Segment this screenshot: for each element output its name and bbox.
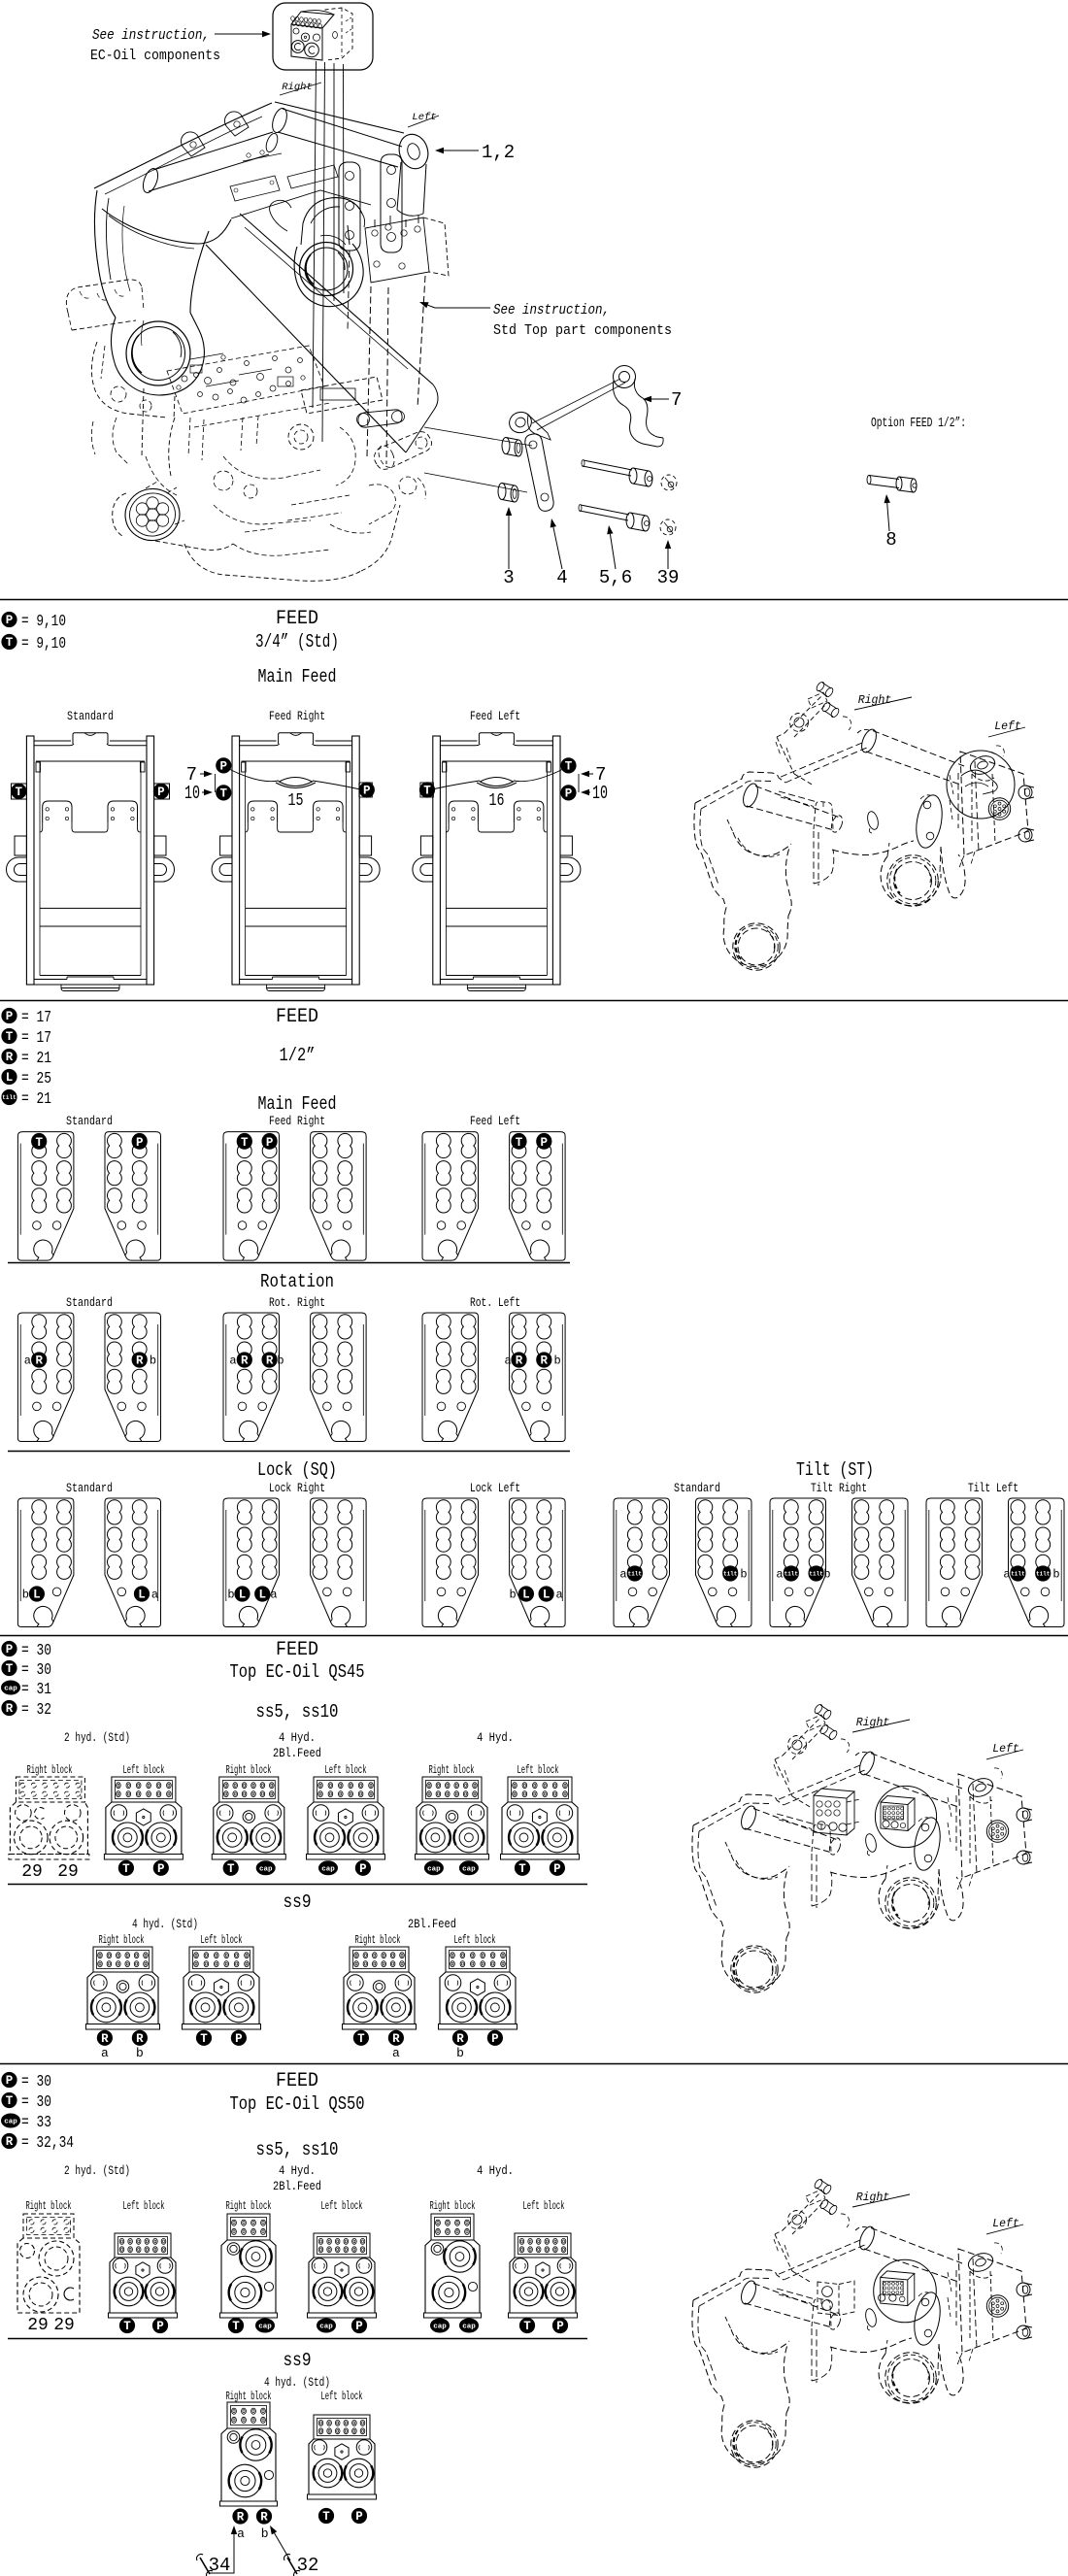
svg-text:P: P <box>157 1862 165 1876</box>
svg-text:cap: cap <box>462 1865 476 1873</box>
svg-text:Left block: Left block <box>201 1934 243 1947</box>
svg-text:T: T <box>518 1862 526 1876</box>
svg-text:a: a <box>229 1355 236 1368</box>
svg-text:ss5, ss10: ss5, ss10 <box>256 1701 339 1723</box>
svg-text:T: T <box>523 2320 531 2333</box>
svg-text:L: L <box>239 1589 247 1602</box>
svg-text:R: R <box>241 1355 249 1368</box>
svg-text:Top EC-Oil QS50: Top EC-Oil QS50 <box>230 2093 365 2115</box>
svg-text:ss5, ss10: ss5, ss10 <box>256 2139 339 2160</box>
svg-text:= 32: = 32 <box>21 1701 51 1720</box>
svg-text:Std Top part components: Std Top part components <box>493 323 672 339</box>
svg-text:Left block: Left block <box>523 2200 565 2213</box>
svg-text:39: 39 <box>657 567 680 588</box>
svg-text:2Bl.Feed: 2Bl.Feed <box>273 1746 321 1760</box>
svg-text:R: R <box>456 2032 464 2046</box>
svg-text:b: b <box>456 2046 464 2060</box>
svg-text:b: b <box>227 1589 234 1602</box>
svg-text:R: R <box>6 1702 14 1716</box>
svg-text:tilt: tilt <box>2 1094 17 1101</box>
svg-text:R: R <box>237 2511 245 2525</box>
svg-text:Feed Left: Feed Left <box>470 710 520 723</box>
svg-text:P: P <box>6 1643 14 1656</box>
svg-text:Feed Right: Feed Right <box>269 710 325 723</box>
svg-text:FEED: FEED <box>276 1006 318 1028</box>
svg-text:T: T <box>516 1136 523 1150</box>
svg-text:Feed Left: Feed Left <box>470 1115 520 1128</box>
svg-text:cap: cap <box>4 2119 17 2126</box>
svg-text:Rot. Right: Rot. Right <box>269 1296 325 1310</box>
svg-text:Right block: Right block <box>355 1934 401 1947</box>
svg-text:b: b <box>136 2046 144 2060</box>
svg-text:Feed Right: Feed Right <box>269 1115 325 1128</box>
svg-text:4 Hyd.: 4 Hyd. <box>477 1730 514 1745</box>
svg-text:a: a <box>555 1589 562 1602</box>
svg-text:10: 10 <box>592 783 608 804</box>
svg-text:T: T <box>16 786 23 799</box>
svg-text:Right block: Right block <box>226 2391 272 2403</box>
svg-text:4 hyd. (Std): 4 hyd. (Std) <box>132 1917 198 1931</box>
svg-text:a: a <box>151 1589 158 1602</box>
svg-text:P: P <box>136 1136 144 1150</box>
svg-text:T: T <box>6 2094 14 2108</box>
svg-text:Left: Left <box>992 2218 1019 2230</box>
svg-text:R: R <box>541 1355 549 1368</box>
svg-text:FEED: FEED <box>276 2070 318 2092</box>
svg-text:3: 3 <box>503 567 514 588</box>
svg-text:cap: cap <box>319 2324 333 2331</box>
svg-text:a: a <box>1003 1568 1010 1582</box>
svg-text:P: P <box>556 2320 564 2333</box>
svg-text:P: P <box>541 1136 549 1150</box>
svg-text:R: R <box>101 2032 109 2046</box>
svg-text:4: 4 <box>556 567 567 588</box>
svg-text:P: P <box>553 1862 561 1876</box>
svg-text:Right block: Right block <box>226 1764 272 1777</box>
svg-text:= 9,10: = 9,10 <box>21 635 66 653</box>
svg-text:Right: Right <box>282 82 313 93</box>
svg-text:Main Feed: Main Feed <box>258 666 337 687</box>
svg-text:Standard: Standard <box>66 1115 113 1128</box>
svg-text:Left block: Left block <box>123 2200 165 2213</box>
svg-text:Left: Left <box>992 1743 1019 1756</box>
svg-text:L: L <box>33 1589 41 1602</box>
svg-text:R: R <box>6 2135 14 2149</box>
svg-text:FEED: FEED <box>276 608 318 630</box>
svg-text:R: R <box>136 2032 144 2046</box>
svg-text:= 30: = 30 <box>21 1661 51 1680</box>
svg-text:Tilt Left: Tilt Left <box>968 1482 1018 1495</box>
svg-text:b: b <box>823 1568 830 1582</box>
svg-text:tilt: tilt <box>1011 1571 1025 1578</box>
svg-text:cap: cap <box>321 1865 335 1873</box>
svg-text:Standard: Standard <box>674 1482 720 1495</box>
svg-text:cap: cap <box>4 1686 17 1693</box>
svg-text:= 9,10: = 9,10 <box>21 613 66 631</box>
svg-text:Right block: Right block <box>26 2200 72 2213</box>
svg-text:Right block: Right block <box>27 1764 73 1777</box>
svg-text:FEED: FEED <box>276 1639 318 1661</box>
svg-text:4 Hyd.: 4 Hyd. <box>279 2163 316 2178</box>
svg-text:b: b <box>277 1355 284 1368</box>
svg-text:a: a <box>101 2046 109 2060</box>
svg-text:P: P <box>6 614 14 627</box>
svg-text:Standard: Standard <box>66 1482 113 1495</box>
svg-text:15: 15 <box>288 791 304 811</box>
svg-text:b: b <box>553 1355 560 1368</box>
svg-text:Standard: Standard <box>67 710 114 723</box>
svg-text:Left block: Left block <box>454 1934 496 1947</box>
svg-text:P: P <box>355 2320 363 2333</box>
svg-text:Right block: Right block <box>226 2200 272 2213</box>
svg-text:R: R <box>136 1355 144 1368</box>
svg-text:Standard: Standard <box>66 1296 113 1310</box>
svg-text:tilt: tilt <box>784 1571 799 1578</box>
svg-text:R: R <box>260 2511 268 2525</box>
svg-text:Right block: Right block <box>430 2200 476 2213</box>
svg-text:R: R <box>392 2032 400 2046</box>
svg-text:T: T <box>122 1862 130 1876</box>
svg-text:T: T <box>6 1030 14 1044</box>
svg-text:cap: cap <box>462 2324 476 2331</box>
svg-text:8: 8 <box>885 529 896 551</box>
svg-text:tilt: tilt <box>809 1571 823 1578</box>
svg-text:= 31: = 31 <box>21 1681 51 1699</box>
svg-text:4 Hyd.: 4 Hyd. <box>477 2163 514 2178</box>
svg-text:Rot. Left: Rot. Left <box>470 1296 520 1310</box>
svg-text:T: T <box>322 2510 330 2524</box>
svg-text:1,2: 1,2 <box>482 142 515 163</box>
svg-text:a: a <box>24 1355 31 1368</box>
svg-text:b: b <box>22 1589 29 1602</box>
svg-text:T: T <box>423 785 431 798</box>
svg-text:ss9: ss9 <box>284 1891 312 1913</box>
svg-text:a: a <box>504 1355 511 1368</box>
svg-text:P: P <box>491 2032 499 2046</box>
svg-text:= 30: = 30 <box>21 2093 51 2112</box>
svg-text:= 30: = 30 <box>21 2073 51 2091</box>
svg-text:29: 29 <box>53 2316 75 2335</box>
svg-text:P: P <box>156 2320 164 2333</box>
svg-text:b: b <box>261 2526 269 2541</box>
svg-text:cap: cap <box>427 1865 441 1873</box>
svg-text:Left block: Left block <box>321 2391 363 2403</box>
svg-text:29: 29 <box>27 2316 49 2335</box>
svg-text:7: 7 <box>671 389 682 411</box>
svg-text:a: a <box>270 1589 277 1602</box>
svg-text:See instruction,: See instruction, <box>92 28 210 44</box>
svg-text:4 hyd. (Std): 4 hyd. (Std) <box>264 2375 330 2390</box>
svg-text:3/4” (Std): 3/4” (Std) <box>255 631 339 652</box>
svg-text:= 25: = 25 <box>21 1070 51 1088</box>
svg-text:1/2”: 1/2” <box>280 1045 316 1066</box>
svg-text:Left block: Left block <box>517 1764 559 1777</box>
svg-text:cap: cap <box>433 2324 447 2331</box>
svg-text:T: T <box>35 1136 43 1150</box>
svg-text:4 Hyd.: 4 Hyd. <box>279 1730 316 1745</box>
svg-text:Rotation: Rotation <box>260 1271 334 1292</box>
svg-text:P: P <box>6 2074 14 2088</box>
svg-text:2 hyd. (Std): 2 hyd. (Std) <box>64 2163 130 2178</box>
svg-text:a: a <box>392 2046 400 2060</box>
svg-text:T: T <box>241 1136 249 1150</box>
svg-text:R: R <box>266 1355 274 1368</box>
svg-text:T: T <box>123 2320 131 2333</box>
svg-text:P: P <box>565 787 573 801</box>
svg-text:2Bl.Feed: 2Bl.Feed <box>273 2179 321 2193</box>
svg-text:2 hyd. (Std): 2 hyd. (Std) <box>64 1730 130 1745</box>
svg-text:See instruction,: See instruction, <box>493 303 610 318</box>
svg-text:T: T <box>232 2320 240 2333</box>
svg-text:T: T <box>200 2032 208 2046</box>
svg-text:= 33: = 33 <box>21 2114 51 2132</box>
svg-text:P: P <box>235 2032 243 2046</box>
svg-text:T: T <box>565 760 573 774</box>
svg-text:L: L <box>6 1071 14 1085</box>
svg-text:29: 29 <box>21 1862 43 1882</box>
svg-text:P: P <box>6 1010 14 1023</box>
svg-text:tilt: tilt <box>628 1571 643 1578</box>
svg-text:a: a <box>619 1568 626 1582</box>
svg-text:Lock (SQ): Lock (SQ) <box>257 1459 337 1481</box>
svg-text:P: P <box>355 2510 363 2524</box>
svg-text:ss9: ss9 <box>284 2350 312 2371</box>
svg-text:R: R <box>35 1355 43 1368</box>
svg-text:= 30: = 30 <box>21 1642 51 1660</box>
svg-text:5,6: 5,6 <box>599 567 632 588</box>
svg-text:T: T <box>227 1862 235 1876</box>
svg-text:b: b <box>509 1589 516 1602</box>
svg-text:Lock Left: Lock Left <box>470 1482 520 1495</box>
svg-text:R: R <box>6 1051 14 1064</box>
svg-text:= 17: = 17 <box>21 1009 51 1027</box>
svg-text:Lock Right: Lock Right <box>269 1482 325 1495</box>
svg-text:Right block: Right block <box>429 1764 475 1777</box>
svg-text:b: b <box>1052 1568 1059 1582</box>
svg-text:cap: cap <box>258 2324 272 2331</box>
svg-text:b: b <box>150 1355 156 1368</box>
svg-text:P: P <box>359 1862 367 1876</box>
svg-text:Main Feed: Main Feed <box>258 1093 337 1115</box>
svg-text:Option FEED 1/2”:: Option FEED 1/2”: <box>871 417 966 431</box>
svg-text:L: L <box>258 1589 266 1602</box>
svg-text:T: T <box>357 2032 365 2046</box>
svg-text:= 21: = 21 <box>21 1050 51 1068</box>
svg-text:Top EC-Oil QS45: Top EC-Oil QS45 <box>230 1661 365 1683</box>
svg-text:Left: Left <box>994 720 1021 733</box>
svg-text:cap: cap <box>259 1865 273 1873</box>
svg-text:L: L <box>543 1589 551 1602</box>
svg-text:16: 16 <box>489 791 505 811</box>
svg-text:29: 29 <box>57 1862 79 1882</box>
svg-text:Left block: Left block <box>123 1764 165 1777</box>
svg-text:= 21: = 21 <box>21 1090 51 1109</box>
svg-text:Tilt (ST): Tilt (ST) <box>796 1459 874 1481</box>
svg-text:P: P <box>220 760 228 774</box>
svg-text:b: b <box>740 1568 747 1582</box>
svg-text:L: L <box>522 1589 530 1602</box>
svg-text:T: T <box>220 787 228 801</box>
svg-text:10: 10 <box>184 783 200 804</box>
svg-text:2Bl.Feed: 2Bl.Feed <box>408 1917 456 1931</box>
svg-text:tilt: tilt <box>723 1571 738 1578</box>
svg-text:Left block: Left block <box>325 1764 367 1777</box>
svg-text:Right block: Right block <box>99 1934 145 1947</box>
svg-text:P: P <box>157 786 165 799</box>
svg-text:P: P <box>363 785 371 798</box>
svg-text:T: T <box>6 636 14 650</box>
svg-text:P: P <box>266 1136 274 1150</box>
svg-text:= 17: = 17 <box>21 1029 51 1048</box>
svg-text:= 32,34: = 32,34 <box>21 2134 74 2153</box>
svg-text:R: R <box>516 1355 523 1368</box>
svg-text:Tilt Right: Tilt Right <box>811 1482 867 1495</box>
svg-text:L: L <box>138 1589 146 1602</box>
svg-text:a: a <box>776 1568 783 1582</box>
svg-text:tilt: tilt <box>1036 1571 1051 1578</box>
svg-text:32: 32 <box>297 2555 319 2576</box>
svg-text:EC-Oil components: EC-Oil components <box>90 49 220 64</box>
svg-text:Left block: Left block <box>321 2200 363 2213</box>
svg-text:a: a <box>237 2526 245 2541</box>
svg-text:T: T <box>6 1662 14 1676</box>
